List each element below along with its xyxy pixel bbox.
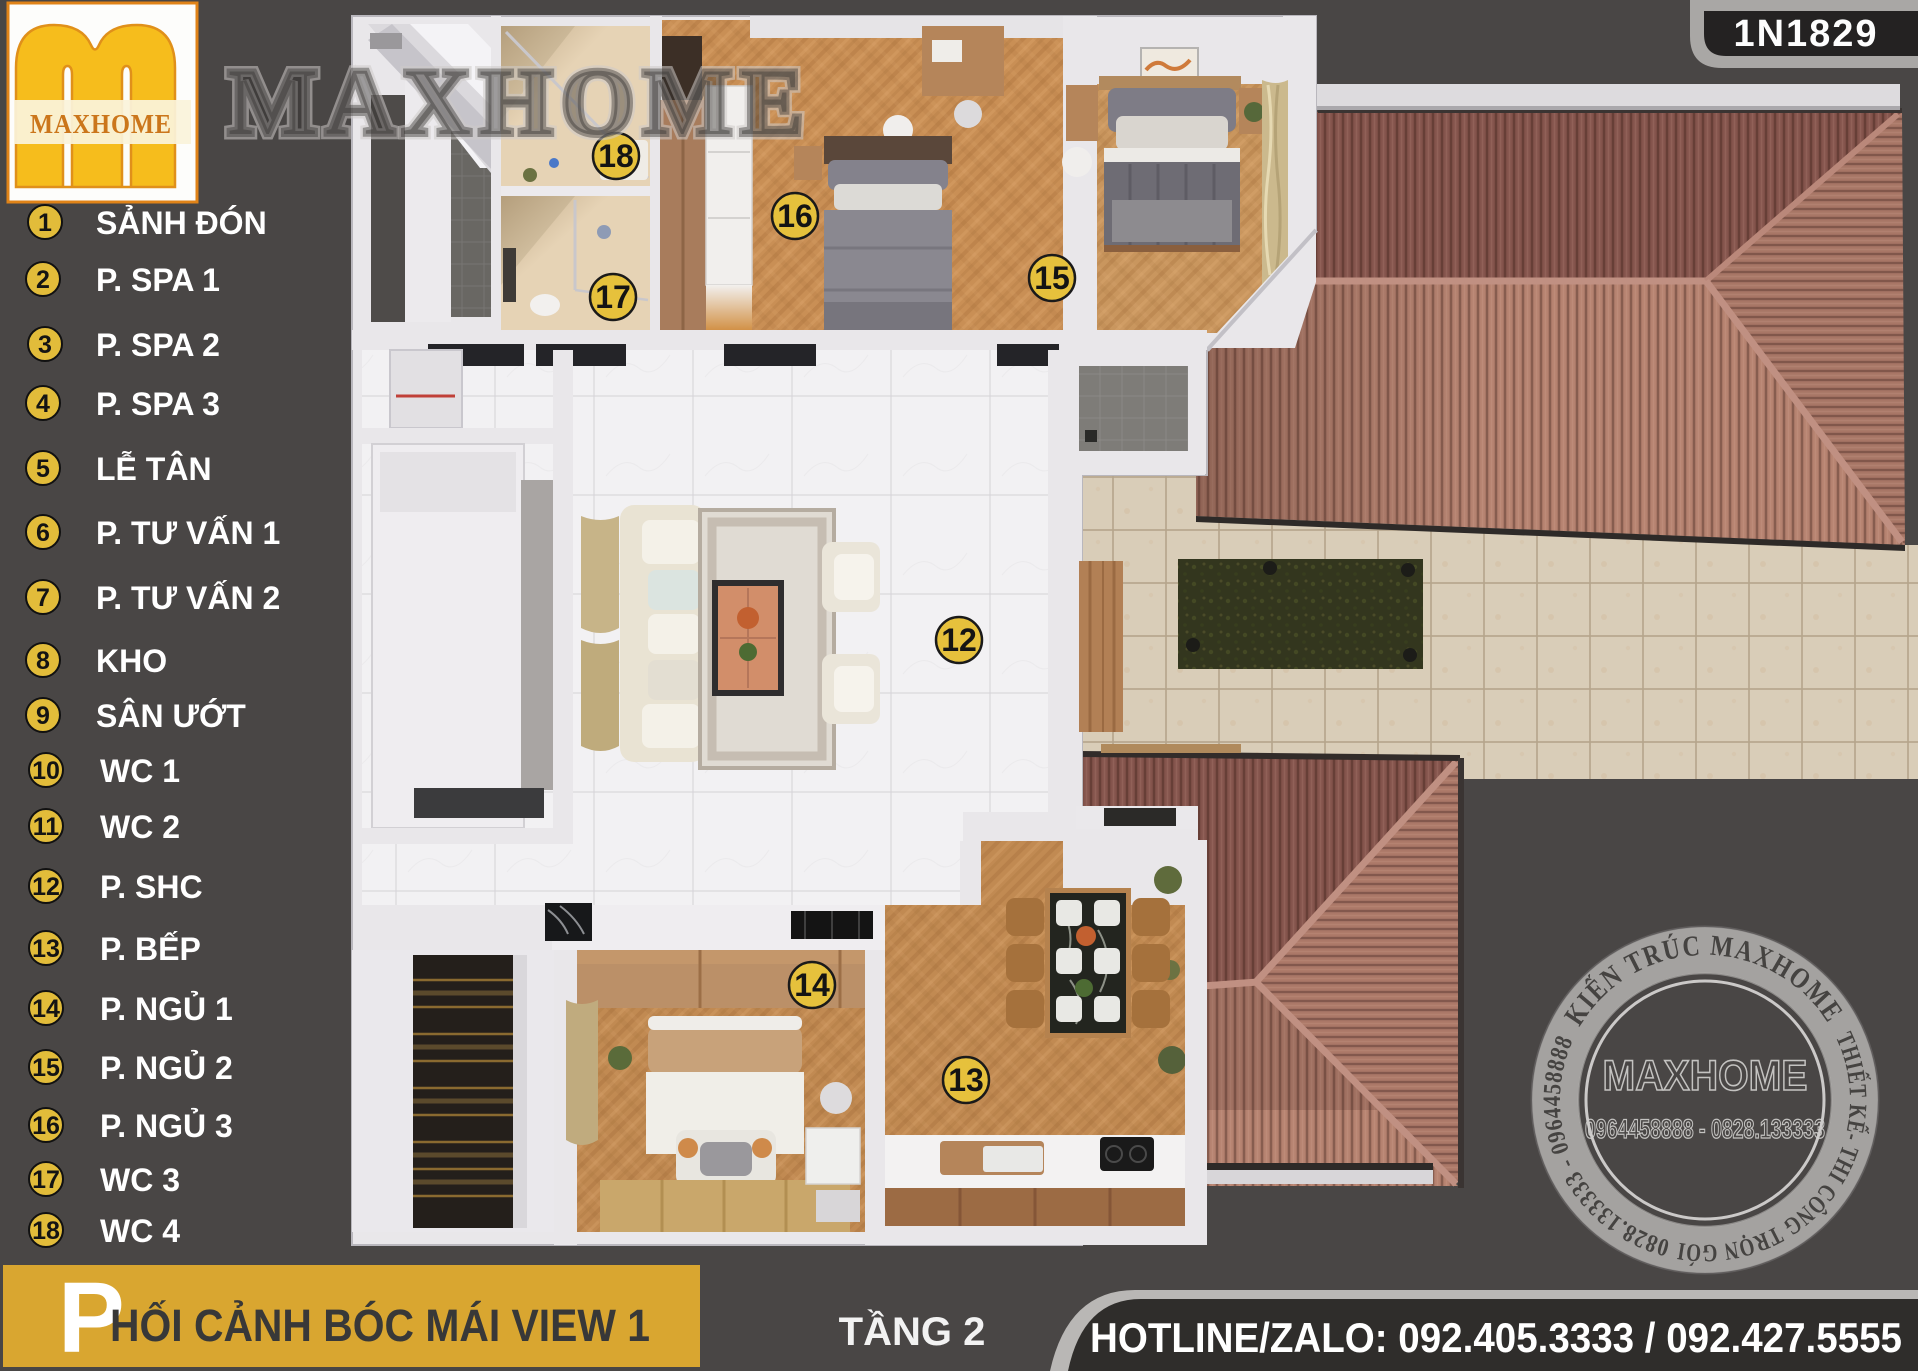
svg-text:WC 3: WC 3 [100,1162,180,1198]
svg-text:P. NGỦ 3: P. NGỦ 3 [100,1108,233,1144]
svg-text:12: 12 [941,622,977,658]
svg-text:P. SHC: P. SHC [100,869,203,905]
svg-text:16: 16 [32,1112,60,1140]
svg-text:P. SPA 2: P. SPA 2 [96,327,220,363]
svg-text:P. SPA 3: P. SPA 3 [96,386,220,422]
svg-text:LỄ TÂN: LỄ TÂN [96,451,212,487]
svg-text:WC 2: WC 2 [100,809,180,845]
svg-text:P. TƯ VẤN 2: P. TƯ VẤN 2 [96,580,280,616]
svg-text:P. NGỦ 1: P. NGỦ 1 [100,991,233,1027]
svg-text:12: 12 [32,873,60,901]
svg-text:1: 1 [38,209,52,237]
svg-text:15: 15 [1034,260,1070,296]
svg-text:3: 3 [38,331,52,359]
svg-text:13: 13 [32,935,60,963]
svg-text:P. SPA 1: P. SPA 1 [96,262,220,298]
svg-text:7: 7 [36,584,50,612]
svg-text:5: 5 [36,455,50,483]
svg-text:P. TƯ VẤN 1: P. TƯ VẤN 1 [96,515,280,551]
svg-text:10: 10 [32,757,60,785]
svg-text:11: 11 [33,813,60,841]
svg-text:8: 8 [36,647,50,675]
svg-text:P. NGỦ 2: P. NGỦ 2 [100,1050,233,1086]
svg-text:16: 16 [777,198,813,234]
svg-text:HỐI CẢNH BÓC MÁI VIEW 1: HỐI CẢNH BÓC MÁI VIEW 1 [110,1300,650,1351]
svg-text:15: 15 [32,1054,60,1082]
svg-text:WC 4: WC 4 [100,1213,180,1249]
svg-text:14: 14 [794,967,830,1003]
svg-text:18: 18 [32,1217,60,1245]
svg-text:1N1829: 1N1829 [1733,13,1878,55]
svg-text:17: 17 [595,279,631,315]
svg-text:MAXHOME: MAXHOME [30,109,172,139]
svg-text:MAXHOME: MAXHOME [1603,1052,1808,1100]
svg-text:17: 17 [32,1166,60,1194]
svg-text:13: 13 [948,1062,984,1098]
svg-text:4: 4 [36,390,50,418]
svg-text:HOTLINE/ZALO: 092.405.3333 / 0: HOTLINE/ZALO: 092.405.3333 / 092.427.555… [1090,1314,1902,1361]
svg-text:6: 6 [36,519,50,547]
svg-text:MAXHOME: MAXHOME [228,49,812,155]
svg-text:9: 9 [36,702,50,730]
svg-text:0964458888 - 0828.133333: 0964458888 - 0828.133333 [1585,1114,1825,1144]
svg-text:KHO: KHO [96,643,167,679]
svg-text:P. BẾP: P. BẾP [100,931,201,967]
svg-text:14: 14 [32,995,60,1023]
svg-text:TẦNG 2: TẦNG 2 [839,1308,986,1354]
svg-text:SÂN ƯỚT: SÂN ƯỚT [96,698,246,734]
svg-text:SẢNH ĐÓN: SẢNH ĐÓN [96,205,267,241]
svg-text:2: 2 [36,266,50,294]
svg-text:WC 1: WC 1 [100,753,180,789]
